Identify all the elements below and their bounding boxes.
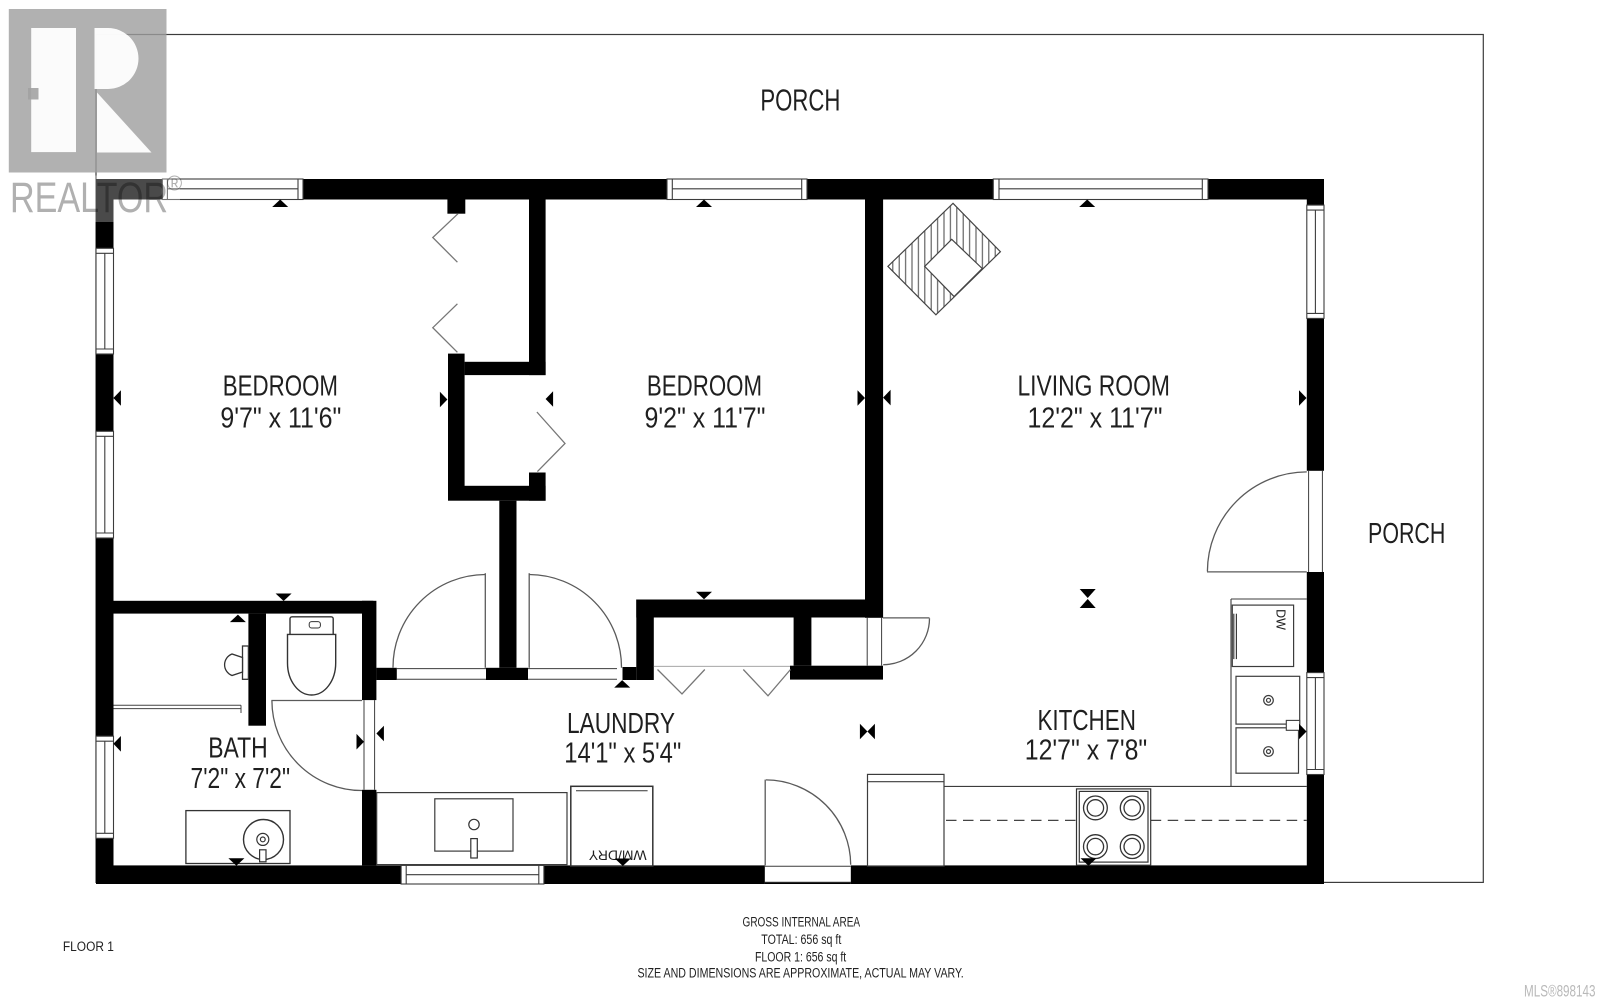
svg-text:SIZE AND DIMENSIONS ARE APPROX: SIZE AND DIMENSIONS ARE APPROXIMATE, ACT… bbox=[637, 966, 963, 982]
svg-text:BEDROOM: BEDROOM bbox=[223, 370, 338, 402]
svg-text:14'1" x 5'4": 14'1" x 5'4" bbox=[564, 738, 681, 770]
svg-text:DW: DW bbox=[1274, 609, 1288, 630]
svg-text:7'2" x 7'2": 7'2" x 7'2" bbox=[191, 763, 291, 795]
svg-text:PORCH: PORCH bbox=[760, 83, 840, 118]
svg-text:LAUNDRY: LAUNDRY bbox=[567, 708, 675, 740]
svg-text:BEDROOM: BEDROOM bbox=[647, 370, 762, 402]
svg-text:FLOOR 1: FLOOR 1 bbox=[63, 939, 114, 955]
svg-text:9'7" x 11'6": 9'7" x 11'6" bbox=[220, 403, 341, 435]
svg-text:PORCH: PORCH bbox=[1368, 518, 1445, 550]
svg-text:TOTAL: 656 sq ft: TOTAL: 656 sq ft bbox=[761, 932, 841, 948]
svg-text:BATH: BATH bbox=[208, 733, 268, 765]
svg-text:12'7" x 7'8": 12'7" x 7'8" bbox=[1025, 735, 1148, 767]
svg-text:12'2" x 11'7": 12'2" x 11'7" bbox=[1028, 403, 1163, 435]
svg-text:9'2" x 11'7": 9'2" x 11'7" bbox=[645, 403, 766, 435]
svg-text:LIVING ROOM: LIVING ROOM bbox=[1017, 370, 1170, 402]
svg-text:REALTOR: REALTOR bbox=[10, 174, 168, 222]
svg-text:®: ® bbox=[167, 173, 183, 196]
svg-text:KITCHEN: KITCHEN bbox=[1037, 705, 1136, 737]
svg-text:MLS®898143: MLS®898143 bbox=[1524, 983, 1596, 999]
svg-text:GROSS INTERNAL AREA: GROSS INTERNAL AREA bbox=[743, 914, 861, 930]
svg-text:FLOOR 1: 656 sq ft: FLOOR 1: 656 sq ft bbox=[755, 949, 846, 965]
